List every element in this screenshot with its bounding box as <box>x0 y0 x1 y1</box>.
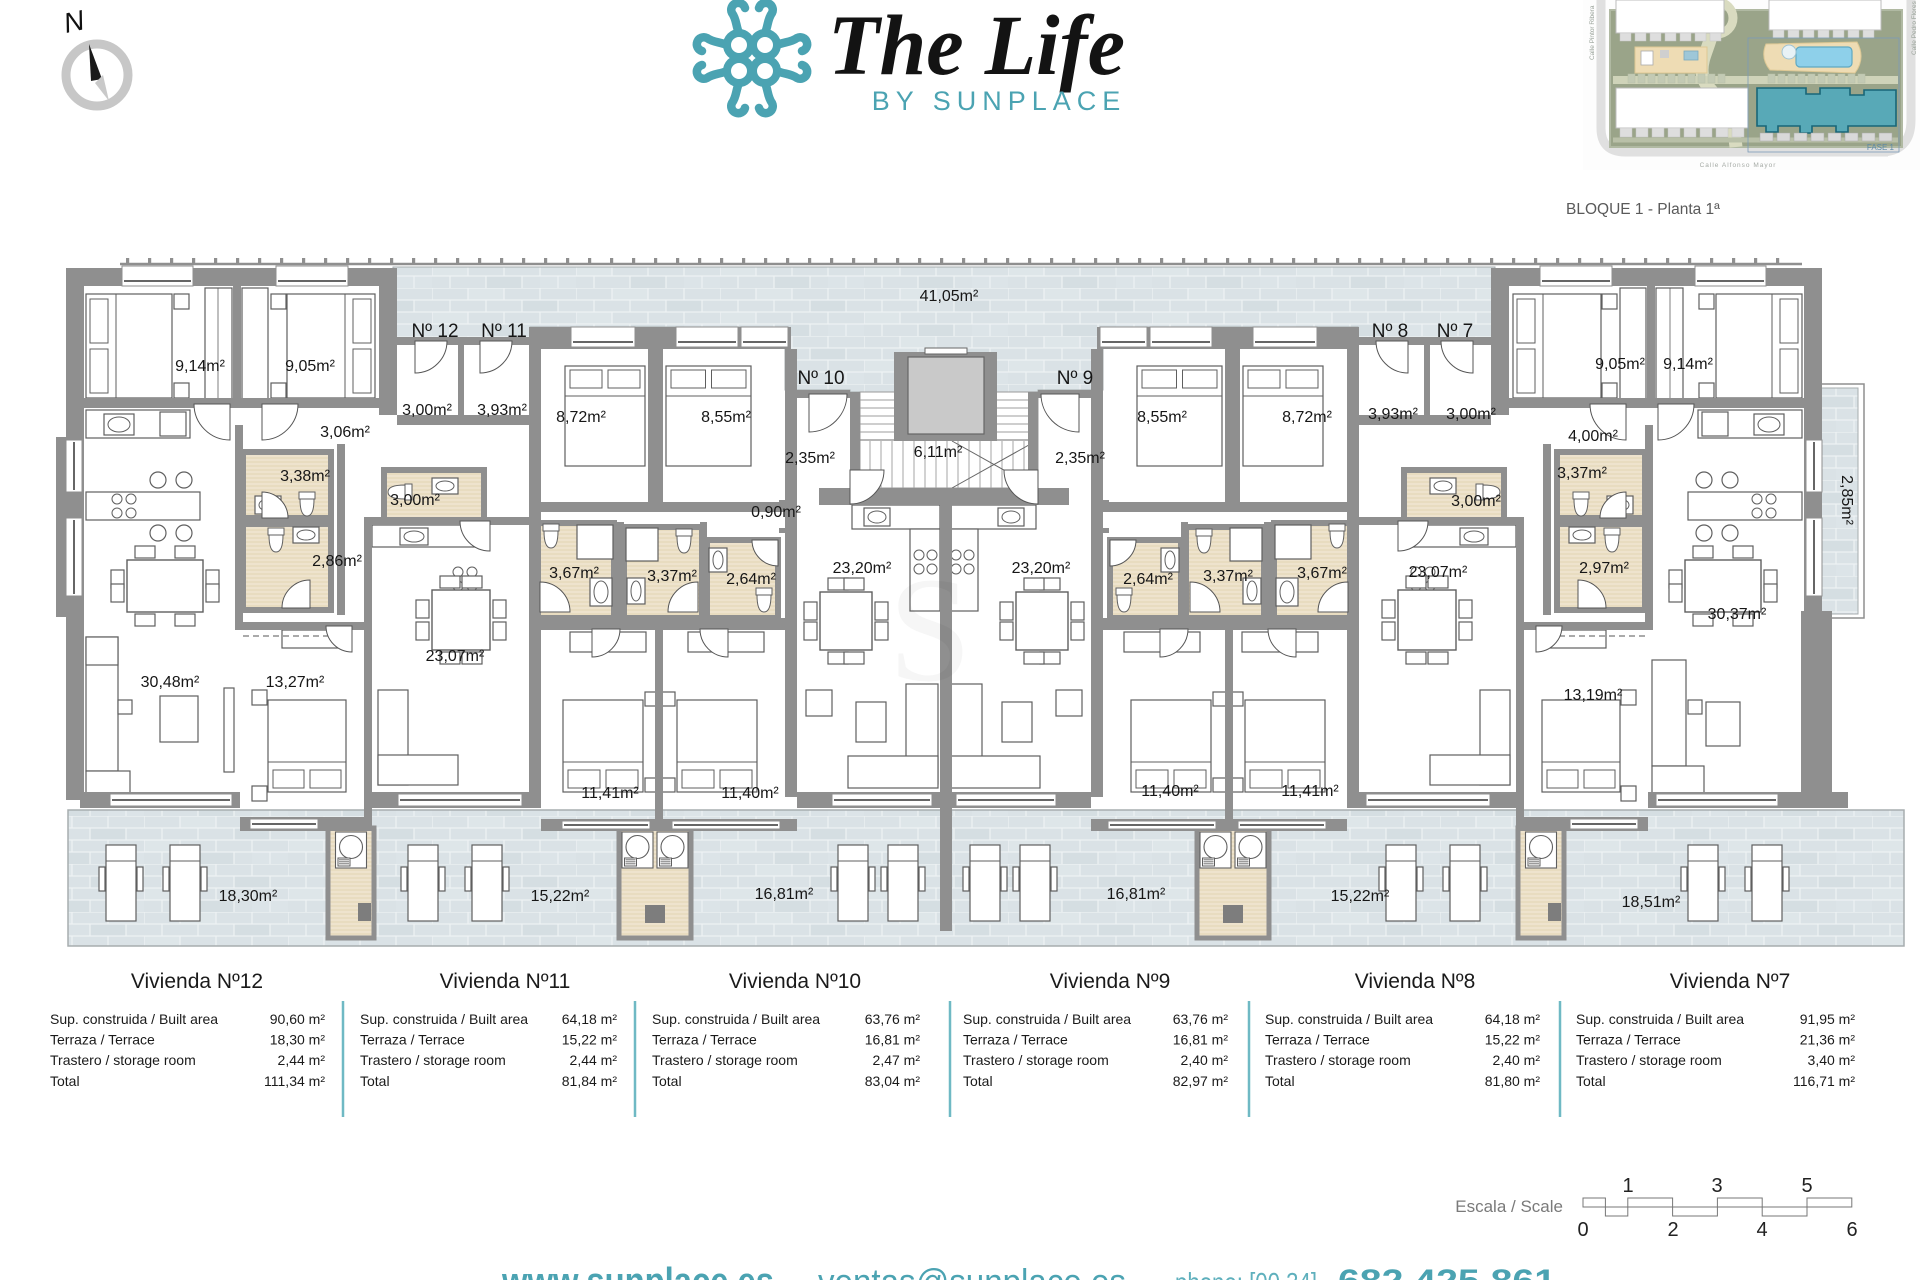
svg-text:23,20m²: 23,20m² <box>833 560 892 577</box>
svg-text:Vivienda Nº12: Vivienda Nº12 <box>131 970 263 993</box>
svg-text:Trastero / storage room: Trastero / storage room <box>963 1052 1109 1068</box>
svg-text:Terraza / Terrace: Terraza / Terrace <box>1265 1032 1370 1048</box>
svg-text:9,14m²: 9,14m² <box>175 358 225 375</box>
svg-text:2,40 m²: 2,40 m² <box>1493 1052 1541 1068</box>
svg-text:30,48m²: 30,48m² <box>141 674 200 691</box>
svg-text:4,00m²: 4,00m² <box>1568 428 1618 445</box>
svg-text:BLOQUE 1 - Planta 1ª: BLOQUE 1 - Planta 1ª <box>1566 201 1720 218</box>
svg-text:9,05m²: 9,05m² <box>285 358 335 375</box>
svg-text:16,81 m²: 16,81 m² <box>1173 1032 1229 1048</box>
svg-text:16,81 m²: 16,81 m² <box>865 1032 921 1048</box>
svg-text:Terraza / Terrace: Terraza / Terrace <box>360 1032 465 1048</box>
svg-text:2,86m²: 2,86m² <box>312 553 362 570</box>
svg-text:11,40m²: 11,40m² <box>1141 783 1199 800</box>
svg-text:3,00m²: 3,00m² <box>402 402 452 419</box>
svg-text:Escala / Scale: Escala / Scale <box>1455 1197 1563 1216</box>
svg-text:2,44 m²: 2,44 m² <box>570 1052 618 1068</box>
svg-text:3,67m²: 3,67m² <box>1297 565 1347 582</box>
svg-text:3,93m²: 3,93m² <box>1368 406 1418 423</box>
svg-text:Nº 8: Nº 8 <box>1372 321 1409 342</box>
svg-text:FASE 1: FASE 1 <box>1867 143 1895 152</box>
svg-text:3,06m²: 3,06m² <box>320 424 370 441</box>
svg-text:8,72m²: 8,72m² <box>556 409 606 426</box>
svg-text:63,76 m²: 63,76 m² <box>865 1011 921 1027</box>
svg-text:81,84 m²: 81,84 m² <box>562 1073 618 1089</box>
svg-text:8,72m²: 8,72m² <box>1282 409 1332 426</box>
svg-text:-: - <box>786 1261 799 1280</box>
svg-text:11,41m²: 11,41m² <box>581 785 639 802</box>
svg-text:Nº 7: Nº 7 <box>1437 321 1474 342</box>
svg-text:9,05m²: 9,05m² <box>1595 356 1645 373</box>
svg-text:Total: Total <box>360 1073 390 1089</box>
svg-text:3,37m²: 3,37m² <box>647 568 697 585</box>
svg-text:Sup. construida / Built area: Sup. construida / Built area <box>1576 1011 1744 1027</box>
svg-text:Trastero / storage room: Trastero / storage room <box>50 1052 196 1068</box>
svg-text:Trastero / storage room: Trastero / storage room <box>1576 1052 1722 1068</box>
svg-text:83,04 m²: 83,04 m² <box>865 1073 921 1089</box>
svg-text:111,34 m²: 111,34 m² <box>264 1073 325 1089</box>
svg-text:0: 0 <box>1577 1219 1588 1241</box>
svg-text:3,38m²: 3,38m² <box>280 468 330 485</box>
svg-text:S: S <box>888 547 971 713</box>
svg-text:Terraza / Terrace: Terraza / Terrace <box>652 1032 757 1048</box>
svg-text:8,55m²: 8,55m² <box>1137 409 1187 426</box>
svg-text:64,18 m²: 64,18 m² <box>1485 1011 1541 1027</box>
svg-text:ventas@sunplace.es: ventas@sunplace.es <box>818 1261 1126 1280</box>
svg-text:23,20m²: 23,20m² <box>1012 560 1071 577</box>
svg-text:Vivienda Nº9: Vivienda Nº9 <box>1050 970 1171 993</box>
svg-text:Trastero / storage room: Trastero / storage room <box>360 1052 506 1068</box>
svg-text:82,97 m²: 82,97 m² <box>1173 1073 1229 1089</box>
svg-text:Terraza / Terrace: Terraza / Terrace <box>963 1032 1068 1048</box>
svg-text:Terraza / Terrace: Terraza / Terrace <box>50 1032 155 1048</box>
svg-text:16,81m²: 16,81m² <box>755 886 814 903</box>
svg-text:phone: [00 34]: phone: [00 34] <box>1175 1267 1317 1280</box>
svg-text:18,30 m²: 18,30 m² <box>270 1032 326 1048</box>
svg-text:2,97m²: 2,97m² <box>1579 560 1629 577</box>
svg-text:18,30m²: 18,30m² <box>219 888 278 905</box>
svg-text:3,40 m²: 3,40 m² <box>1808 1052 1856 1068</box>
svg-text:6,11m²: 6,11m² <box>914 444 963 461</box>
svg-text:0,90m²: 0,90m² <box>751 504 801 521</box>
svg-text:5: 5 <box>1801 1175 1812 1197</box>
svg-text:BY SUNPLACE: BY SUNPLACE <box>872 86 1127 116</box>
svg-text:-: - <box>1141 1261 1154 1280</box>
svg-text:Nº 9: Nº 9 <box>1057 368 1094 389</box>
svg-text:Trastero / storage room: Trastero / storage room <box>652 1052 798 1068</box>
svg-text:Calle Pintor Ribera: Calle Pintor Ribera <box>1589 5 1596 60</box>
svg-text:Total: Total <box>652 1073 682 1089</box>
svg-text:Total: Total <box>1265 1073 1295 1089</box>
svg-text:The Life: The Life <box>828 0 1125 93</box>
svg-text:15,22 m²: 15,22 m² <box>562 1032 618 1048</box>
svg-text:3,00m²: 3,00m² <box>390 492 440 509</box>
svg-text:Calle Alfonso Mayor: Calle Alfonso Mayor <box>1700 162 1777 169</box>
svg-text:81,80 m²: 81,80 m² <box>1485 1073 1541 1089</box>
svg-text:11,41m²: 11,41m² <box>1281 783 1339 800</box>
svg-text:11,40m²: 11,40m² <box>721 785 779 802</box>
svg-text:3,37m²: 3,37m² <box>1557 465 1607 482</box>
svg-text:Sup. construida / Built area: Sup. construida / Built area <box>1265 1011 1433 1027</box>
svg-text:Nº 11: Nº 11 <box>481 321 527 342</box>
svg-text:3,67m²: 3,67m² <box>549 565 599 582</box>
svg-text:2,47 m²: 2,47 m² <box>873 1052 921 1068</box>
svg-text:116,71 m²: 116,71 m² <box>1793 1073 1855 1089</box>
svg-text:41,05m²: 41,05m² <box>920 288 979 305</box>
svg-text:91,95 m²: 91,95 m² <box>1800 1011 1856 1027</box>
svg-text:30,37m²: 30,37m² <box>1708 606 1767 623</box>
svg-text:Total: Total <box>1576 1073 1606 1089</box>
svg-text:8,55m²: 8,55m² <box>701 409 751 426</box>
svg-text:18,51m²: 18,51m² <box>1622 894 1681 911</box>
svg-text:15,22m²: 15,22m² <box>531 888 590 905</box>
svg-text:2,35m²: 2,35m² <box>785 450 835 467</box>
svg-text:Calle Pedro Flores: Calle Pedro Flores <box>1911 0 1918 55</box>
svg-text:9,14m²: 9,14m² <box>1663 356 1713 373</box>
svg-text:4: 4 <box>1756 1219 1767 1241</box>
svg-text:Sup. construida / Built area: Sup. construida / Built area <box>963 1011 1131 1027</box>
svg-text:1: 1 <box>1622 1175 1633 1197</box>
svg-text:3: 3 <box>1711 1175 1722 1197</box>
svg-text:Sup. construida / Built area: Sup. construida / Built area <box>50 1011 218 1027</box>
svg-text:Vivienda Nº7: Vivienda Nº7 <box>1670 970 1791 993</box>
svg-text:Total: Total <box>50 1073 80 1089</box>
svg-text:Terraza / Terrace: Terraza / Terrace <box>1576 1032 1681 1048</box>
svg-text:www.sunplace.es: www.sunplace.es <box>501 1261 774 1280</box>
svg-text:16,81m²: 16,81m² <box>1107 886 1166 903</box>
svg-text:23,07m²: 23,07m² <box>426 648 485 665</box>
svg-text:Trastero / storage room: Trastero / storage room <box>1265 1052 1411 1068</box>
svg-text:23,07m²: 23,07m² <box>1409 564 1468 581</box>
svg-text:Nº 10: Nº 10 <box>797 368 844 389</box>
svg-text:682 425 861: 682 425 861 <box>1338 1263 1556 1280</box>
svg-text:2,85m²: 2,85m² <box>1838 475 1855 525</box>
svg-text:Sup. construida / Built area: Sup. construida / Built area <box>652 1011 820 1027</box>
svg-text:Sup. construida / Built area: Sup. construida / Built area <box>360 1011 528 1027</box>
svg-text:3,37m²: 3,37m² <box>1203 568 1253 585</box>
svg-text:13,19m²: 13,19m² <box>1564 687 1623 704</box>
svg-text:Vivienda Nº10: Vivienda Nº10 <box>729 970 861 993</box>
svg-text:3,00m²: 3,00m² <box>1451 493 1501 510</box>
svg-text:2,64m²: 2,64m² <box>726 571 776 588</box>
svg-text:2: 2 <box>1667 1219 1678 1241</box>
svg-text:2,64m²: 2,64m² <box>1123 571 1173 588</box>
svg-text:Vivienda Nº11: Vivienda Nº11 <box>440 970 571 993</box>
svg-text:13,27m²: 13,27m² <box>266 674 325 691</box>
svg-text:64,18 m²: 64,18 m² <box>562 1011 618 1027</box>
svg-text:90,60 m²: 90,60 m² <box>270 1011 326 1027</box>
svg-text:15,22 m²: 15,22 m² <box>1485 1032 1541 1048</box>
svg-text:Total: Total <box>963 1073 993 1089</box>
svg-text:Vivienda Nº8: Vivienda Nº8 <box>1355 970 1476 993</box>
svg-text:2,40 m²: 2,40 m² <box>1181 1052 1229 1068</box>
svg-text:63,76 m²: 63,76 m² <box>1173 1011 1229 1027</box>
svg-text:15,22m²: 15,22m² <box>1331 888 1390 905</box>
svg-text:Nº 12: Nº 12 <box>411 321 458 342</box>
svg-text:6: 6 <box>1846 1219 1857 1241</box>
svg-text:21,36 m²: 21,36 m² <box>1800 1032 1856 1048</box>
svg-text:2,44 m²: 2,44 m² <box>278 1052 326 1068</box>
svg-text:3,93m²: 3,93m² <box>477 402 527 419</box>
svg-text:3,00m²: 3,00m² <box>1446 406 1496 423</box>
svg-text:2,35m²: 2,35m² <box>1055 450 1105 467</box>
